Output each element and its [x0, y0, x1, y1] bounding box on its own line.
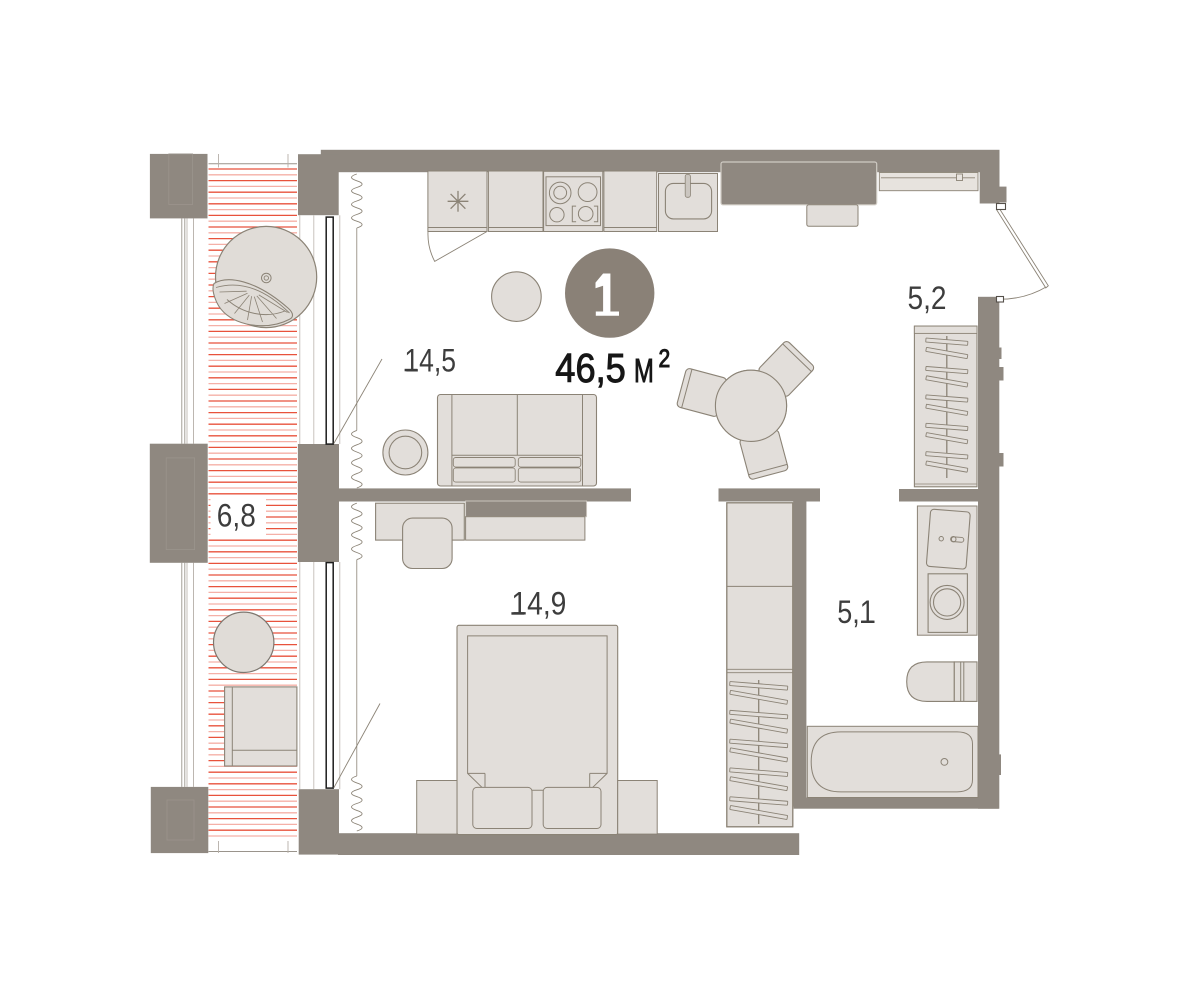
svg-text:46,5: 46,5 — [555, 345, 626, 391]
svg-text:6,8: 6,8 — [217, 498, 256, 534]
svg-text:14,9: 14,9 — [511, 586, 566, 622]
svg-text:М: М — [634, 353, 654, 390]
svg-text:2: 2 — [659, 345, 671, 373]
svg-text:14,5: 14,5 — [404, 342, 456, 378]
svg-text:5,2: 5,2 — [908, 280, 947, 316]
svg-text:5,1: 5,1 — [837, 594, 875, 630]
